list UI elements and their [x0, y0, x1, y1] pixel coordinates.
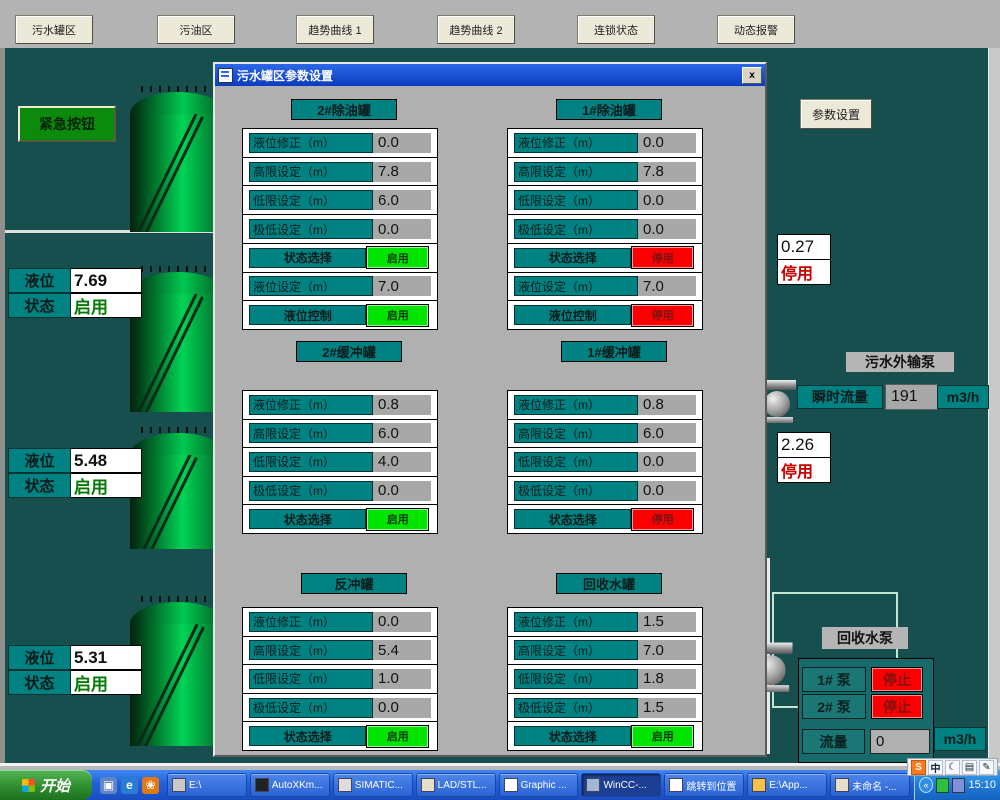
param-label: 液位修正（m）	[514, 395, 638, 415]
param-row: 液位修正（m）0.8	[508, 391, 702, 420]
tank-ladder-icon	[135, 114, 197, 232]
params-dialog: 污水罐区参数设置 x 2#除油罐液位修正（m）0.0高限设定（m）7.8低限设定…	[213, 62, 767, 757]
level-label: 液位	[8, 268, 71, 293]
param-label: 高限设定（m）	[514, 423, 638, 443]
param-row: 液位设定（m）7.0	[508, 273, 702, 302]
param-label: 液位设定（m）	[514, 276, 638, 296]
param-label: 液位修正（m）	[249, 133, 373, 153]
param-row: 极低设定（m）0.0	[243, 215, 437, 244]
param-row: 液位设定（m）7.0	[243, 273, 437, 302]
level-value: 5.48	[71, 448, 142, 473]
window-edge-left	[0, 48, 5, 764]
group-title: 1#除油罐	[556, 99, 662, 120]
status-row: 状态启用	[8, 293, 142, 318]
outflow-pump-title: 污水外输泵	[846, 352, 954, 372]
group-panel: 液位修正（m）0.0高限设定（m）5.4低限设定（m）1.0极低设定（m）0.0…	[242, 607, 438, 751]
group-panel: 液位修正（m）0.8高限设定（m）6.0低限设定（m）0.0极低设定（m）0.0…	[507, 390, 703, 534]
param-label: 状态选择	[514, 509, 631, 529]
pump-status: 停用	[777, 260, 831, 285]
nav-button-4[interactable]: 连锁状态	[577, 15, 655, 44]
param-value-field[interactable]: 7.0	[638, 276, 696, 296]
task-label: SIMATIC...	[355, 780, 403, 791]
recycle-flow-unit: m3/h	[934, 727, 986, 751]
param-row: 高限设定（m）6.0	[243, 420, 437, 449]
param-label: 高限设定（m）	[249, 162, 373, 182]
tank-ladder-icon	[141, 455, 191, 549]
param-row: 液位控制停用	[508, 301, 702, 329]
param-row: 液位修正（m）0.0	[243, 129, 437, 158]
param-row: 高限设定（m）5.4	[243, 637, 437, 666]
param-value-field[interactable]: 7.0	[638, 640, 696, 660]
window-edge-right	[988, 48, 1000, 764]
param-row: 极低设定（m）1.5	[508, 694, 702, 723]
status-row: 状态启用	[8, 473, 142, 498]
taskbar-tasks: E:\AutoXKm...SIMATIC...LAD/STL...Graphic…	[167, 773, 910, 797]
storage-tank-1	[130, 86, 226, 232]
param-row: 高限设定（m）7.8	[243, 158, 437, 187]
state-toggle-button[interactable]: 停用	[631, 304, 694, 327]
param-label: 极低设定（m）	[514, 481, 638, 501]
param-value-field[interactable]: 1.5	[638, 698, 696, 718]
instant-flow-label: 瞬时流量	[797, 385, 883, 409]
param-row: 高限设定（m）7.8	[508, 158, 702, 187]
status-value: 启用	[71, 293, 142, 318]
nav-button-3[interactable]: 趋势曲线 2	[437, 15, 515, 44]
param-row: 液位修正（m）0.0	[508, 129, 702, 158]
windows-logo-icon	[22, 779, 35, 792]
doc-icon	[835, 778, 849, 792]
param-label: 液位修正（m）	[249, 612, 373, 632]
pump-status-button[interactable]: 停止	[871, 667, 923, 692]
tank-ladder-icon	[135, 294, 197, 412]
param-row: 极低设定（m）0.0	[243, 477, 437, 506]
state-toggle-button[interactable]: 启用	[366, 304, 429, 327]
close-icon[interactable]: x	[742, 67, 762, 84]
group-title: 回收水罐	[556, 573, 662, 594]
group-title: 反冲罐	[301, 573, 407, 594]
ime-moon-icon[interactable]: ☾	[945, 760, 960, 775]
param-label: 液位设定（m）	[249, 276, 373, 296]
param-label: 低限设定（m）	[249, 452, 373, 472]
state-toggle-button[interactable]: 启用	[366, 508, 429, 531]
clock: 15:10	[968, 779, 996, 791]
task-button-7[interactable]: 跳转到位置	[664, 773, 744, 797]
pump-readout-1: 0.27 停用	[777, 234, 831, 285]
task-label: E:\App...	[769, 780, 807, 791]
nav-button-0[interactable]: 污水罐区	[15, 15, 93, 44]
param-label: 状态选择	[514, 726, 631, 746]
task-button-2[interactable]: AutoXKm...	[250, 773, 330, 797]
tank-readout-1: 液位7.69状态启用	[8, 268, 142, 318]
param-label: 极低设定（m）	[514, 219, 638, 239]
param-value-field[interactable]: 0.0	[373, 133, 431, 153]
param-label: 低限设定（m）	[514, 669, 638, 689]
level-value: 5.31	[71, 645, 142, 670]
param-row: 状态选择启用	[243, 244, 437, 273]
start-button[interactable]: 开始	[0, 770, 92, 800]
level-label: 液位	[8, 448, 71, 473]
pump-status-button[interactable]: 停止	[871, 694, 923, 719]
pump-label: 1# 泵	[802, 667, 866, 692]
param-value-field[interactable]: 1.5	[638, 612, 696, 632]
param-row: 高限设定（m）6.0	[508, 420, 702, 449]
tray-chevron-icon[interactable]: «	[919, 777, 933, 793]
tray-network-icon[interactable]	[952, 778, 965, 793]
param-row: 低限设定（m）6.0	[243, 186, 437, 215]
jump-icon	[669, 778, 683, 792]
simatic-icon	[338, 778, 352, 792]
group-panel: 液位修正（m）0.0高限设定（m）7.8低限设定（m）0.0极低设定（m）0.0…	[507, 128, 703, 330]
param-label: 高限设定（m）	[514, 162, 638, 182]
recycle-pump-panel: 1# 泵停止2# 泵停止 流量 0	[798, 658, 934, 763]
task-label: E:\	[189, 780, 201, 791]
group-panel: 液位修正（m）1.5高限设定（m）7.0低限设定（m）1.8极低设定（m）1.5…	[507, 607, 703, 751]
task-label: WinCC-...	[603, 780, 646, 791]
task-button-6[interactable]: WinCC-...	[581, 773, 661, 797]
param-row: 状态选择启用	[508, 722, 702, 750]
param-value-field[interactable]: 0.0	[638, 219, 696, 239]
param-value-field[interactable]: 5.4	[373, 640, 431, 660]
taskbar: 开始 ▣e❀ E:\AutoXKm...SIMATIC...LAD/STL...…	[0, 770, 1000, 800]
task-button-9[interactable]: 未命名 -...	[830, 773, 910, 797]
ladstl-icon	[421, 778, 435, 792]
ie-icon[interactable]: e	[121, 777, 138, 794]
status-value: 启用	[71, 473, 142, 498]
param-label: 低限设定（m）	[249, 669, 373, 689]
param-value-field[interactable]: 0.0	[638, 190, 696, 210]
param-row: 状态选择启用	[243, 722, 437, 750]
param-value-field[interactable]: 0.8	[373, 395, 431, 415]
status-label: 状态	[8, 670, 71, 695]
params-settings-button[interactable]: 参数设置	[800, 99, 872, 129]
param-value-field[interactable]: 0.0	[638, 452, 696, 472]
sogou-icon[interactable]: S	[911, 760, 926, 775]
recycle-pump-row: 2# 泵停止	[802, 693, 930, 720]
dialog-app-icon	[218, 68, 233, 83]
param-value-field[interactable]: 6.0	[373, 423, 431, 443]
instant-flow-unit: m3/h	[937, 385, 989, 409]
tank-readout-2: 液位5.48状态启用	[8, 448, 142, 498]
param-row: 低限设定（m）1.8	[508, 665, 702, 694]
param-label: 状态选择	[249, 726, 366, 746]
task-button-3[interactable]: SIMATIC...	[333, 773, 413, 797]
param-label: 极低设定（m）	[249, 698, 373, 718]
quick-launch: ▣e❀	[100, 777, 159, 794]
param-label: 液位修正（m）	[249, 395, 373, 415]
ime-tools-icon[interactable]: ✎	[979, 760, 994, 775]
task-button-4[interactable]: LAD/STL...	[416, 773, 496, 797]
app-icon	[255, 778, 269, 792]
param-value-field[interactable]: 1.0	[373, 669, 431, 689]
drive-icon	[172, 778, 186, 792]
nav-button-5[interactable]: 动态报警	[717, 15, 795, 44]
param-row: 状态选择停用	[508, 505, 702, 533]
level-label: 液位	[8, 645, 71, 670]
task-button-1[interactable]: E:\	[167, 773, 247, 797]
pump-value: 0.27	[777, 234, 831, 260]
nav-button-2[interactable]: 趋势曲线 1	[296, 15, 374, 44]
param-row: 低限设定（m）1.0	[243, 665, 437, 694]
desktop-icon[interactable]: ▣	[100, 777, 117, 794]
param-row: 液位控制启用	[243, 301, 437, 329]
level-row: 液位7.69	[8, 268, 142, 293]
state-toggle-button[interactable]: 启用	[366, 725, 429, 748]
pump-label: 2# 泵	[802, 694, 866, 719]
outflow-pump-icon	[762, 380, 796, 426]
param-label: 低限设定（m）	[249, 190, 373, 210]
task-button-5[interactable]: Graphic ...	[499, 773, 579, 797]
param-label: 液位修正（m）	[514, 133, 638, 153]
param-value-field[interactable]: 0.0	[638, 133, 696, 153]
dialog-body: 2#除油罐液位修正（m）0.0高限设定（m）7.8低限设定（m）6.0极低设定（…	[215, 86, 765, 753]
dialog-titlebar[interactable]: 污水罐区参数设置 x	[215, 64, 765, 86]
param-value-field[interactable]: 7.0	[373, 276, 431, 296]
param-label: 高限设定（m）	[249, 423, 373, 443]
media-icon[interactable]: ❀	[142, 777, 159, 794]
recycle-pump-title: 回收水泵	[822, 627, 908, 649]
param-label: 状态选择	[514, 248, 631, 268]
lang-zh-icon[interactable]: 中	[928, 760, 943, 775]
param-label: 极低设定（m）	[249, 219, 373, 239]
state-toggle-button[interactable]: 启用	[366, 246, 429, 269]
param-value-field[interactable]: 0.8	[638, 395, 696, 415]
task-label: LAD/STL...	[438, 780, 487, 791]
level-row: 液位5.48	[8, 448, 142, 473]
param-label: 状态选择	[249, 248, 366, 268]
flow-value: 0	[870, 729, 930, 754]
param-label: 低限设定（m）	[514, 190, 638, 210]
param-label: 状态选择	[249, 509, 366, 529]
param-row: 状态选择停用	[508, 244, 702, 273]
language-bar: S中☾▤✎	[907, 758, 998, 776]
param-row: 液位修正（m）0.0	[243, 608, 437, 637]
group-title: 2#除油罐	[291, 99, 397, 120]
recycle-pump-row: 1# 泵停止	[802, 666, 930, 693]
storage-tank-2	[130, 266, 226, 412]
pump-readout-2: 2.26 停用	[777, 432, 831, 483]
group-panel: 液位修正（m）0.0高限设定（m）7.8低限设定（m）6.0极低设定（m）0.0…	[242, 128, 438, 330]
nav-button-1[interactable]: 污油区	[157, 15, 235, 44]
param-row: 低限设定（m）4.0	[243, 448, 437, 477]
param-row: 极低设定（m）0.0	[508, 477, 702, 506]
param-value-field[interactable]: 6.0	[373, 190, 431, 210]
param-label: 极低设定（m）	[514, 698, 638, 718]
param-label: 高限设定（m）	[249, 640, 373, 660]
level-value: 7.69	[71, 268, 142, 293]
param-row: 液位修正（m）0.8	[243, 391, 437, 420]
task-label: AutoXKm...	[272, 780, 323, 791]
storage-tank-4	[130, 596, 226, 746]
param-row: 低限设定（m）0.0	[508, 448, 702, 477]
param-row: 低限设定（m）0.0	[508, 186, 702, 215]
pump-status: 停用	[777, 458, 831, 483]
status-value: 启用	[71, 670, 142, 695]
param-value-field[interactable]: 1.8	[638, 669, 696, 689]
param-value-field[interactable]: 7.8	[373, 162, 431, 182]
flow-label: 流量	[802, 729, 865, 754]
param-row: 液位修正（m）1.5	[508, 608, 702, 637]
group-title: 1#缓冲罐	[561, 341, 667, 362]
param-value-field[interactable]: 0.0	[373, 219, 431, 239]
task-button-8[interactable]: E:\App...	[747, 773, 827, 797]
status-row: 状态启用	[8, 670, 142, 695]
tray-status-icon[interactable]	[936, 778, 949, 793]
wincc-icon	[586, 778, 600, 792]
folder-icon	[752, 778, 766, 792]
param-label: 液位修正（m）	[514, 612, 638, 632]
group-title: 2#缓冲罐	[296, 341, 402, 362]
storage-tank-3	[130, 427, 226, 549]
param-label: 液位控制	[514, 305, 631, 325]
param-value-field[interactable]: 0.0	[638, 481, 696, 501]
graphics-icon	[504, 778, 518, 792]
param-label: 低限设定（m）	[514, 452, 638, 472]
task-label: 未命名 -...	[852, 778, 896, 793]
param-row: 极低设定（m）0.0	[508, 215, 702, 244]
recycle-flow-row: 流量 0	[802, 728, 930, 755]
level-row: 液位5.31	[8, 645, 142, 670]
param-row: 高限设定（m）7.0	[508, 637, 702, 666]
param-row: 极低设定（m）0.0	[243, 694, 437, 723]
task-label: 跳转到位置	[686, 778, 736, 793]
status-label: 状态	[8, 473, 71, 498]
group-panel: 液位修正（m）0.8高限设定（m）6.0低限设定（m）4.0极低设定（m）0.0…	[242, 390, 438, 534]
param-label: 极低设定（m）	[249, 481, 373, 501]
emergency-button[interactable]: 紧急按钮	[18, 106, 116, 142]
param-label: 液位控制	[249, 305, 366, 325]
param-label: 高限设定（m）	[514, 640, 638, 660]
param-value-field[interactable]: 0.0	[373, 612, 431, 632]
pump-value: 2.26	[777, 432, 831, 458]
dialog-title: 污水罐区参数设置	[237, 67, 742, 84]
task-label: Graphic ...	[521, 780, 567, 791]
state-toggle-button[interactable]: 启用	[631, 725, 694, 748]
param-value-field[interactable]: 0.0	[373, 481, 431, 501]
param-value-field[interactable]: 0.0	[373, 698, 431, 718]
param-value-field[interactable]: 6.0	[638, 423, 696, 443]
state-toggle-button[interactable]: 停用	[631, 246, 694, 269]
param-row: 状态选择启用	[243, 505, 437, 533]
instant-flow-value: 191	[885, 384, 938, 410]
keyboard-icon[interactable]: ▤	[962, 760, 977, 775]
state-toggle-button[interactable]: 停用	[631, 508, 694, 531]
tank-readout-3: 液位5.31状态启用	[8, 645, 142, 695]
param-value-field[interactable]: 4.0	[373, 452, 431, 472]
param-value-field[interactable]: 7.8	[638, 162, 696, 182]
tank-ladder-icon	[134, 624, 198, 746]
status-label: 状态	[8, 293, 71, 318]
